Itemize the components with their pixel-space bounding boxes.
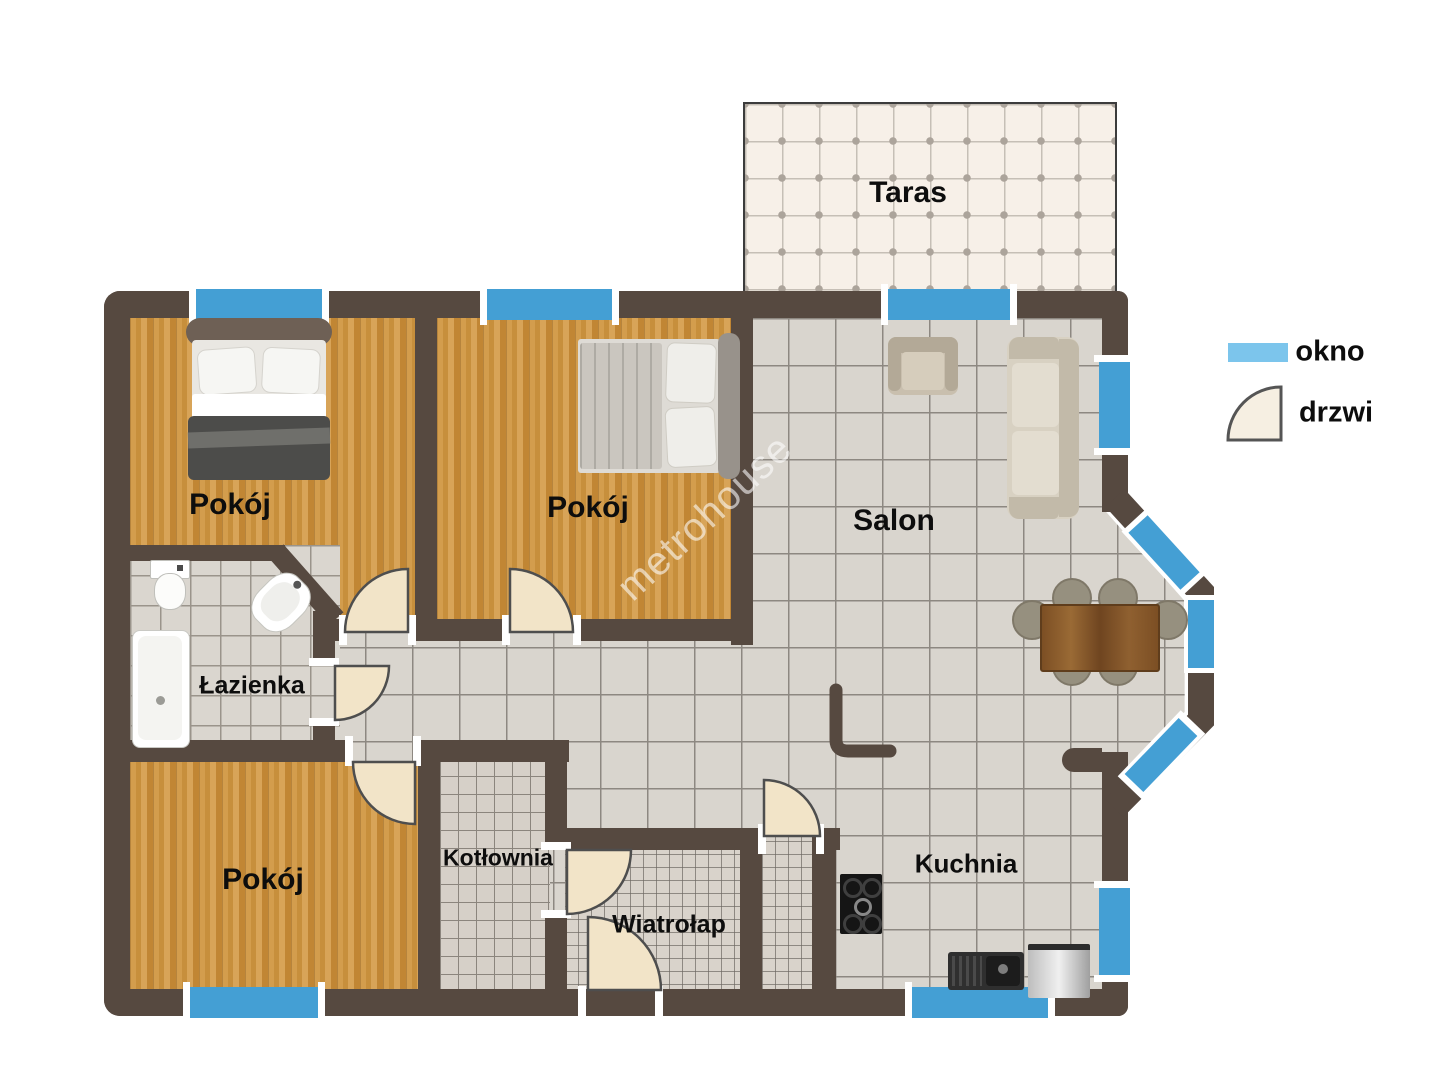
sink-drainboard [952,956,982,986]
legend-window-label: okno [1295,336,1364,369]
armchair-seat [902,352,944,390]
room-label-kotlownia: Kotłownia [443,845,553,872]
room-label-lazienka: Łazienka [199,672,305,701]
window-bedroom2 [487,289,612,320]
wall-bathroom-right-a [313,611,335,664]
bathtub-drain [156,696,165,705]
window-salon-top [888,289,1010,320]
pillow [665,342,717,404]
sofa-cushion [1012,363,1059,427]
armchair-arm [888,341,901,391]
dining-table-icon [1040,604,1160,672]
bed-double-icon [186,318,332,482]
armchair-arm [945,341,958,391]
wall-bedroom3-right [418,740,440,989]
pillow [261,347,321,396]
wall-left [104,291,130,1016]
bathtub-basin [138,636,182,740]
bed-double-icon [578,333,740,479]
room-label-pokoj-top-left: Pokój [189,488,271,522]
room-label-wiatrolap: Wiatrołap [612,911,726,940]
wall-corridor-top-b [410,619,508,641]
window-bedroom3 [190,987,318,1018]
toilet-icon [150,560,190,610]
window-salon-right [1099,362,1130,448]
wall-bathroom-top [130,545,285,561]
pillow [664,406,717,469]
room-label-taras: Taras [869,176,947,210]
wall-stub-kitchen-right [1062,748,1102,772]
dishwasher-icon [1028,944,1090,998]
floorplan-canvas: Taras Pokój Pokój Salon Łazienka Pokój K… [0,0,1446,1080]
legend-door-label: drzwi [1299,397,1373,430]
bed-blanket [188,416,330,480]
wall-kitchen-left [812,828,836,989]
sofa-back [1059,339,1079,517]
pillow [196,346,257,396]
bathtub-icon [132,630,188,746]
sink-faucet [998,964,1008,974]
burner [862,878,882,898]
burner [843,878,863,898]
toilet-bowl [154,573,186,610]
room-label-salon: Salon [853,504,935,538]
legend-window-icon [1228,343,1288,362]
wall-vestibule-right [740,828,762,989]
wall-corridor-top-c [575,619,731,641]
wall-bedroom1-bedroom2 [415,318,437,631]
burner [862,914,882,934]
kitchen-sink-icon [948,952,1024,990]
bed-blanket [580,343,662,469]
legend-door-symbol [1220,387,1287,442]
entry-passage-floor [762,828,816,989]
room-label-pokoj-bottom-left: Pokój [222,863,304,897]
room-label-kuchnia: Kuchnia [915,849,1018,880]
stove-knob [854,898,872,916]
window-bedroom1 [196,289,322,320]
armchair-icon [888,337,958,395]
wall-vestibule-top-a [545,828,764,850]
toilet-button [177,565,183,571]
sofa-cushion [1012,431,1059,495]
sofa-armrest [1009,337,1059,359]
room-label-pokoj-top-middle: Pokój [547,491,629,525]
burner [843,914,863,934]
sofa-icon [1007,337,1079,519]
wall-boiler-right-b [545,914,567,989]
stove-icon [840,874,882,934]
sofa-armrest [1009,497,1059,519]
window-kitchen-right [1099,888,1130,975]
vestibule-floor [565,828,745,989]
